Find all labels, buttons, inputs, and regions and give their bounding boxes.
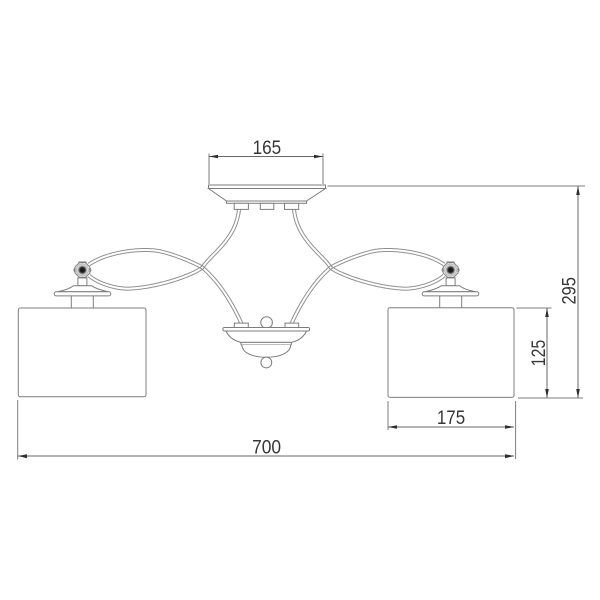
svg-text:165: 165 (253, 137, 282, 159)
svg-text:125: 125 (528, 340, 550, 367)
svg-text:295: 295 (559, 277, 581, 305)
svg-text:700: 700 (252, 437, 281, 459)
svg-text:175: 175 (437, 407, 465, 429)
